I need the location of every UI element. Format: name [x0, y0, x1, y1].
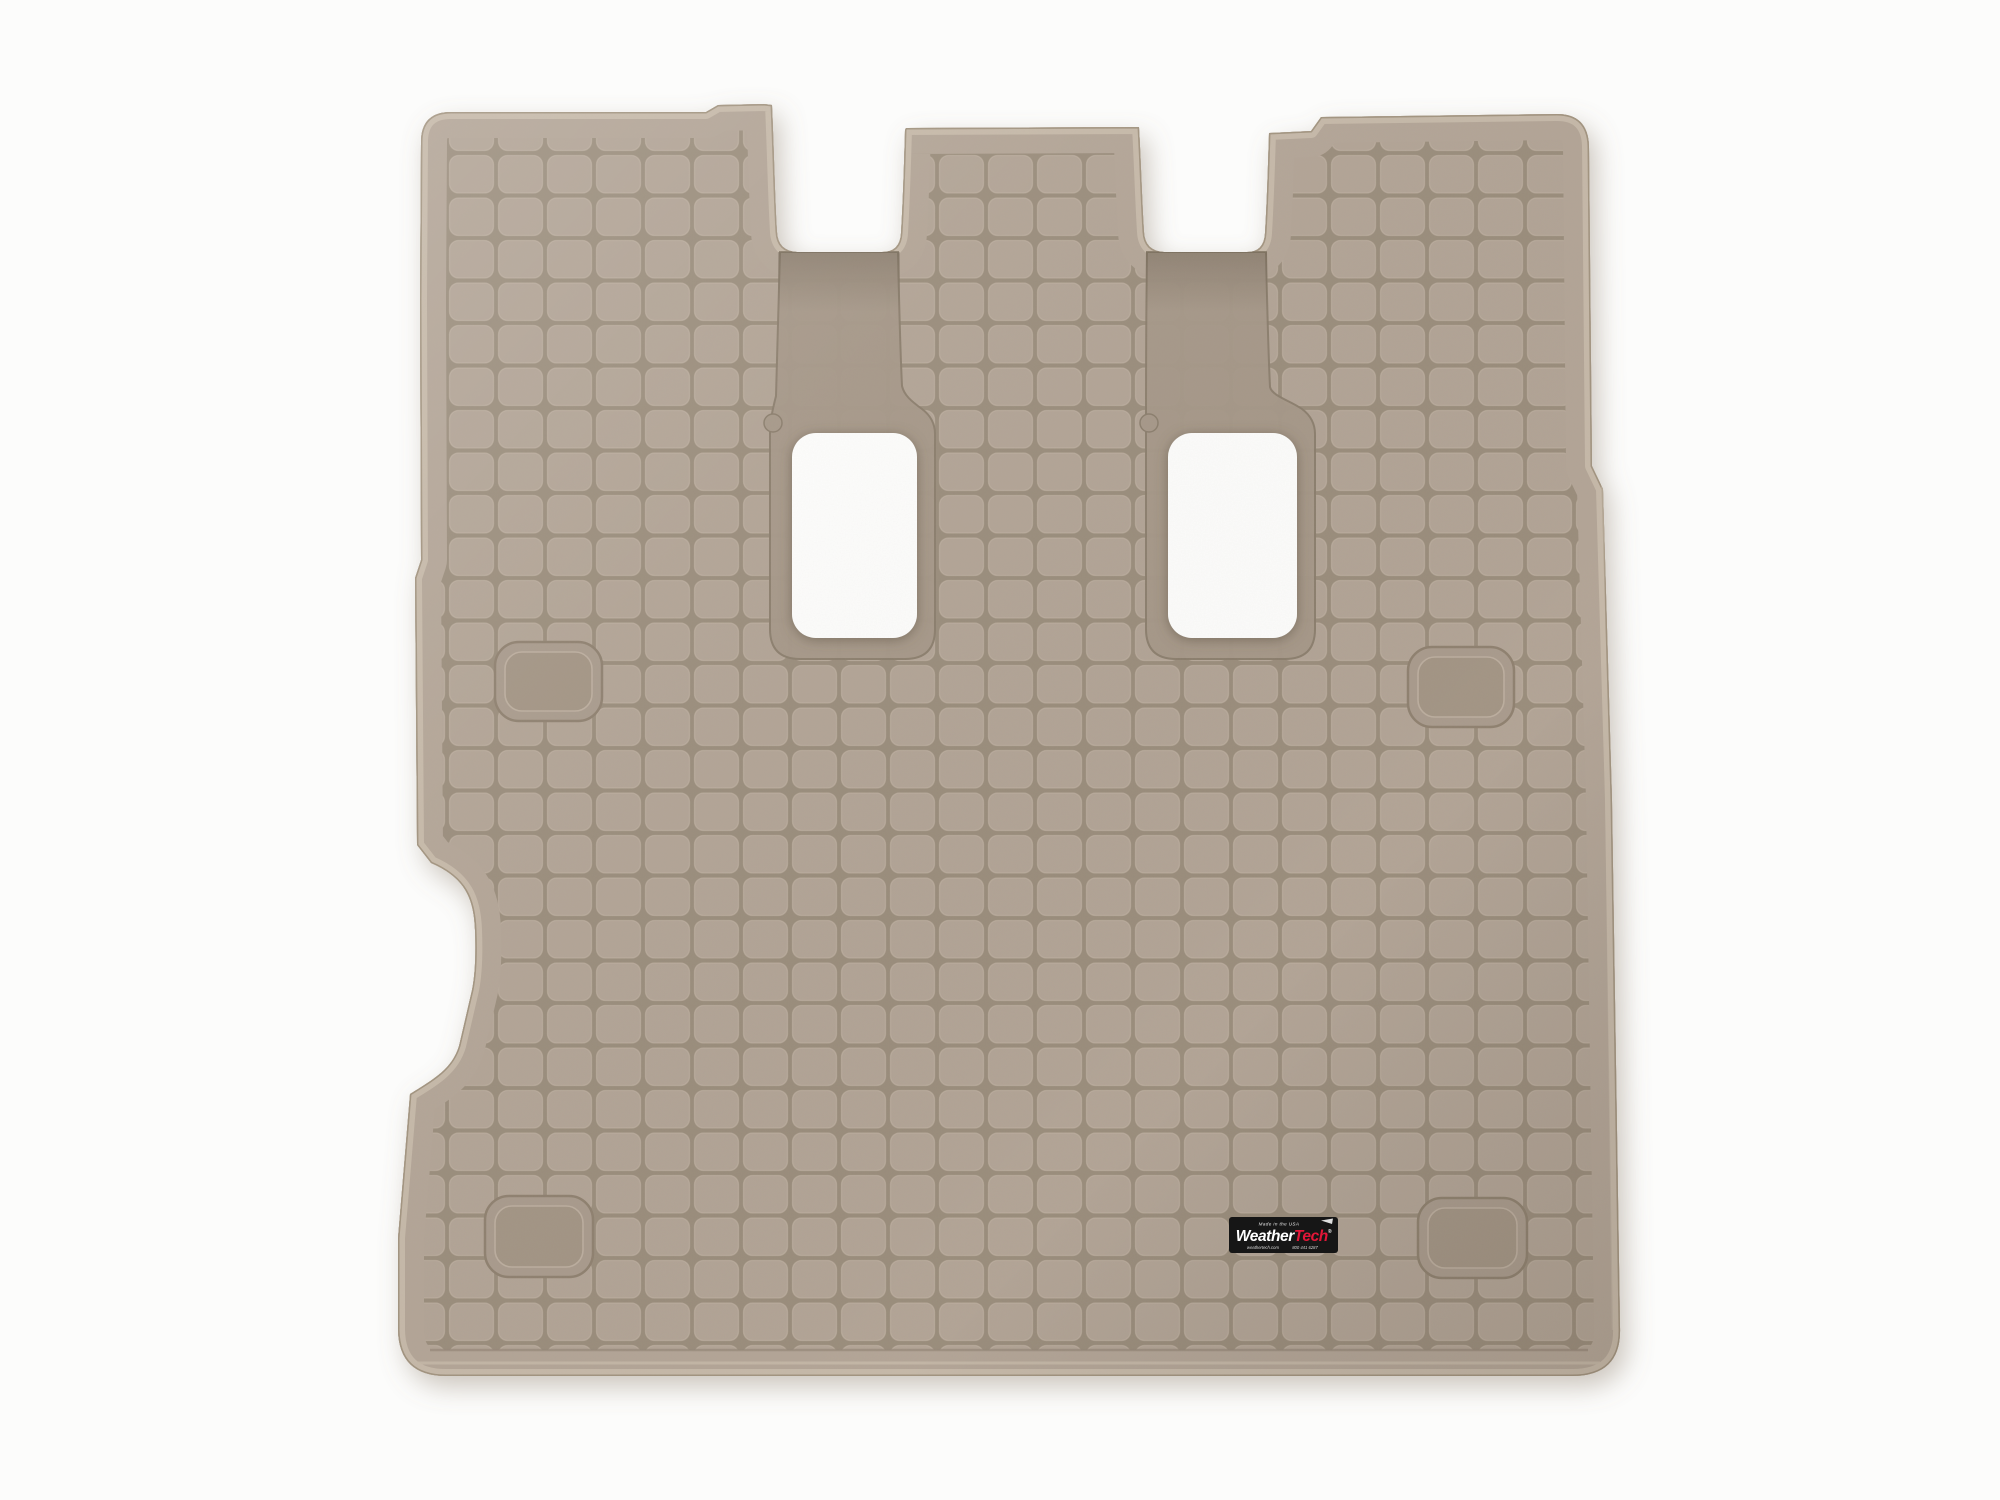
weathertech-badge: Made in the USA WeatherTech® weathertech… — [1229, 1217, 1338, 1253]
badge-brand-weather: Weather — [1236, 1228, 1295, 1245]
cargo-liner-illustration: Made in the USA WeatherTech® weathertech… — [0, 0, 2000, 1500]
cargo-liner-mat: Made in the USA WeatherTech® weathertech… — [380, 90, 1640, 1393]
badge-brand-tech: Tech — [1294, 1228, 1328, 1245]
texture-grain — [390, 95, 1635, 1393]
badge-website-text: weathertech.com — [1247, 1245, 1279, 1250]
product-photo: Made in the USA WeatherTech® weathertech… — [0, 0, 2000, 1500]
badge-brand-text: WeatherTech® — [1236, 1228, 1332, 1245]
badge-made-in-text: Made in the USA — [1259, 1222, 1300, 1227]
badge-phone-text: 800 441 6287 — [1292, 1245, 1318, 1250]
